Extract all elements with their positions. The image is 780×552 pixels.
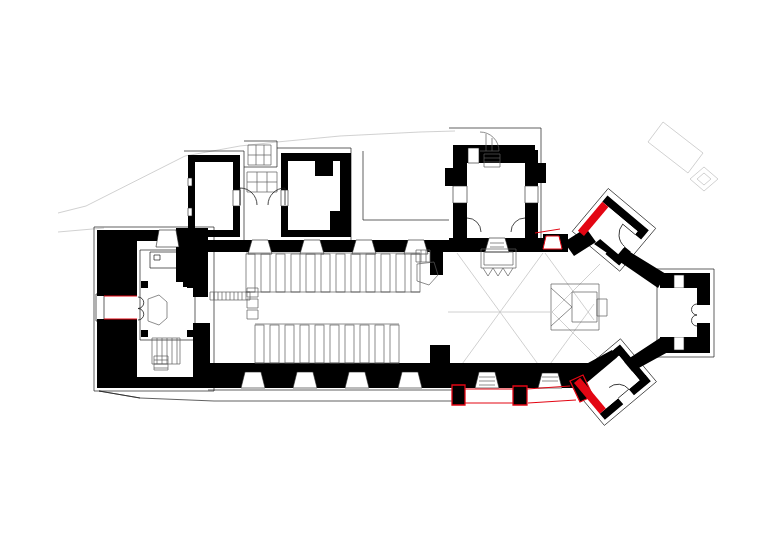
pew-row bbox=[345, 325, 354, 363]
transept-corner-arches bbox=[467, 218, 525, 232]
pew-row bbox=[330, 325, 339, 363]
north-porch-steps bbox=[248, 145, 271, 165]
pew-row bbox=[285, 325, 294, 363]
pew-row bbox=[315, 325, 324, 363]
screen-comb bbox=[210, 292, 250, 300]
floor-plan-canvas bbox=[0, 0, 780, 552]
drawing-sheet bbox=[0, 0, 780, 552]
pew-row bbox=[270, 325, 279, 363]
pew-row bbox=[366, 254, 375, 292]
west-door-reveals bbox=[104, 296, 137, 319]
nave-arcades bbox=[208, 234, 597, 388]
pew-row bbox=[336, 254, 345, 292]
monument-rect bbox=[648, 122, 703, 173]
ne-corner-red-line bbox=[535, 229, 560, 233]
pew-row bbox=[255, 325, 264, 363]
south-aisle-lines bbox=[99, 390, 456, 401]
pew-row bbox=[246, 254, 255, 292]
altar bbox=[551, 284, 607, 330]
pew-row bbox=[375, 325, 384, 363]
west-door-leaves bbox=[138, 297, 144, 320]
tower-stairs bbox=[152, 338, 180, 370]
pew-row bbox=[360, 325, 369, 363]
north-room-a-walls bbox=[188, 155, 240, 237]
pew-row bbox=[261, 254, 270, 292]
heaters bbox=[247, 288, 258, 319]
vault-ribs bbox=[448, 253, 600, 371]
pew-row bbox=[300, 325, 309, 363]
vault-projection-lines bbox=[448, 253, 600, 371]
pew-row bbox=[351, 254, 360, 292]
pew-bank-frames bbox=[246, 253, 420, 363]
pew-row bbox=[396, 254, 405, 292]
pew-row bbox=[276, 254, 285, 292]
pew-row bbox=[390, 325, 399, 363]
pew-row bbox=[381, 254, 390, 292]
entrance-step-outline bbox=[96, 294, 104, 321]
pew-row bbox=[291, 254, 300, 292]
passage-door-left bbox=[240, 188, 257, 205]
organ bbox=[481, 249, 516, 276]
font bbox=[148, 295, 167, 325]
courtyard-boundary bbox=[363, 151, 449, 220]
pew-row bbox=[306, 254, 315, 292]
chancel-corner-gap bbox=[543, 236, 562, 249]
passage-steps bbox=[247, 172, 277, 192]
pews-north bbox=[246, 254, 420, 292]
pew-row bbox=[321, 254, 330, 292]
pews-south bbox=[255, 325, 399, 363]
pew-row bbox=[411, 254, 420, 292]
monument-square-outer bbox=[690, 167, 718, 191]
monument-square-inner bbox=[697, 173, 711, 185]
